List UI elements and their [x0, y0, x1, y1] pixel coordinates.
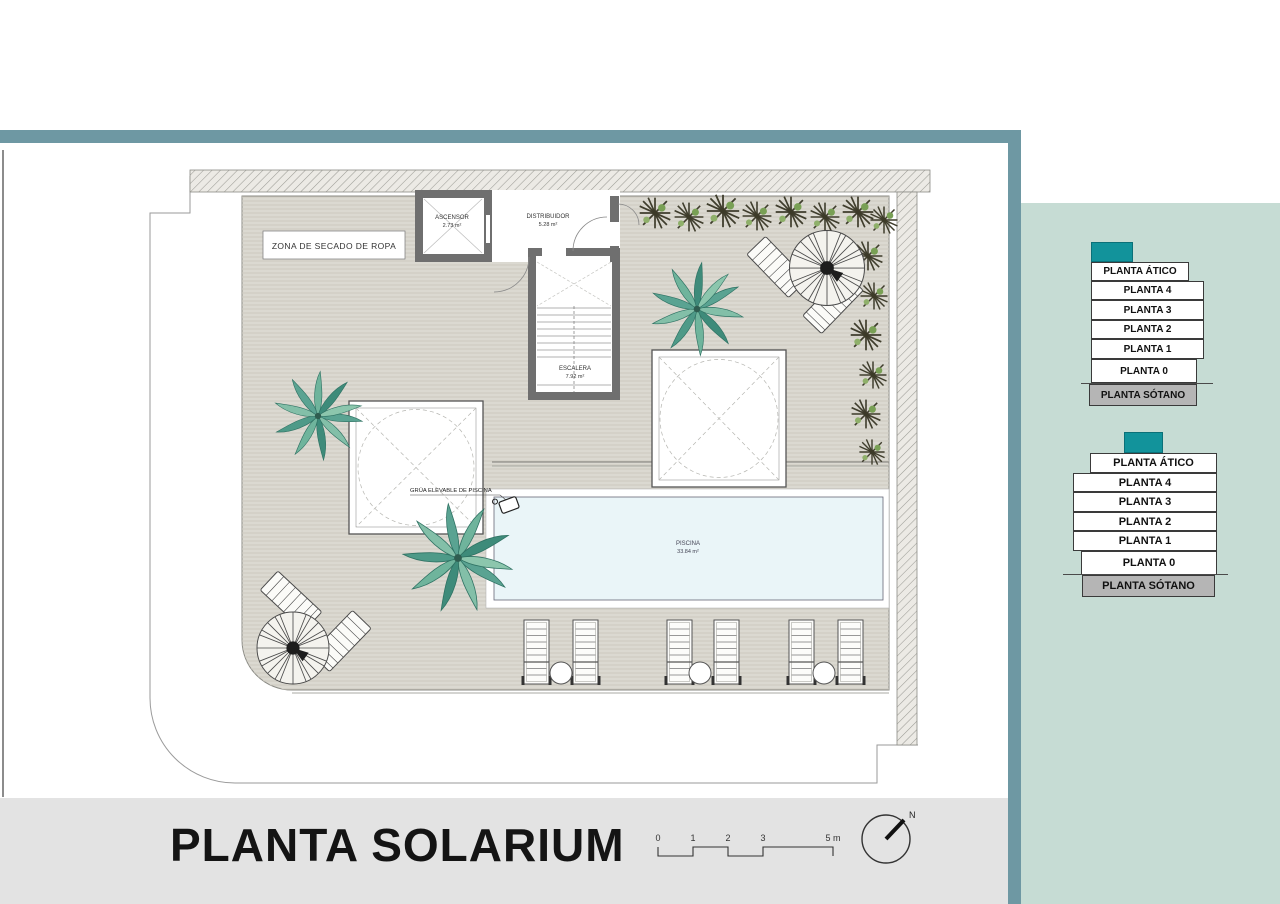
- floor-item-p0[interactable]: PLANTA 0: [1081, 551, 1217, 575]
- elevator-door-gap: [486, 215, 490, 243]
- stack-highlight-solarium: [1124, 432, 1163, 453]
- floor-item-p2[interactable]: PLANTA 2: [1091, 320, 1204, 339]
- floor-item-p0[interactable]: PLANTA 0: [1091, 359, 1197, 383]
- side-table-icon: [813, 662, 835, 684]
- side-table-icon: [689, 662, 711, 684]
- room-area-ascensor: 2.73 m²: [443, 223, 462, 229]
- floor-item-p3[interactable]: PLANTA 3: [1073, 492, 1217, 512]
- pool: PISCINA 33.84 m²: [486, 489, 889, 608]
- scale-tick-0: 0: [655, 833, 660, 843]
- scale-tick-5m: 5 m: [825, 833, 840, 843]
- floor-plan-drawing: ZONA DE SECADO DE ROPA PISCINA 33.84 m² …: [0, 143, 1008, 798]
- skylight-right: [652, 350, 786, 487]
- drying-zone-text: ZONA DE SECADO DE ROPA: [272, 241, 396, 251]
- scale-tick-1: 1: [690, 833, 695, 843]
- floor-item-p1[interactable]: PLANTA 1: [1091, 339, 1204, 359]
- floor-item-p3[interactable]: PLANTA 3: [1091, 300, 1204, 320]
- top-wall: [190, 170, 930, 192]
- building-stack-lower: PLANTA ÁTICO PLANTA 4 PLANTA 3 PLANTA 2 …: [1063, 432, 1228, 598]
- floor-item-sotano[interactable]: PLANTA SÓTANO: [1082, 575, 1215, 597]
- skylight-left: [349, 401, 483, 534]
- room-label-escalera: ESCALERA: [559, 366, 591, 372]
- floor-item-p2[interactable]: PLANTA 2: [1073, 512, 1217, 531]
- scale-and-north: 0 1 2 3 5 m N: [640, 800, 940, 890]
- room-area-escalera: 7.92 m²: [566, 374, 585, 380]
- north-label: N: [909, 810, 916, 820]
- north-arrow-icon: N: [862, 810, 916, 863]
- scale-bar: 0 1 2 3 5 m: [655, 833, 840, 856]
- room-label-distribuidor: DISTRIBUIDOR: [526, 214, 570, 220]
- right-wall: [897, 192, 917, 745]
- pool-name: PISCINA: [676, 541, 700, 547]
- floor-item-p4[interactable]: PLANTA 4: [1073, 473, 1217, 492]
- floor-item-atico[interactable]: PLANTA ÁTICO: [1091, 262, 1189, 281]
- room-label-ascensor: ASCENSOR: [435, 215, 469, 221]
- pool-area: 33.84 m²: [677, 549, 699, 555]
- floor-item-sotano[interactable]: PLANTA SÓTANO: [1089, 384, 1197, 406]
- room-area-distribuidor: 5.28 m²: [539, 222, 558, 228]
- building-stack-upper: PLANTA ÁTICO PLANTA 4 PLANTA 3 PLANTA 2 …: [1081, 242, 1213, 407]
- stack-highlight-solarium: [1091, 242, 1133, 262]
- floor-item-p1[interactable]: PLANTA 1: [1073, 531, 1217, 551]
- floor-item-p4[interactable]: PLANTA 4: [1091, 281, 1204, 300]
- scale-tick-3: 3: [760, 833, 765, 843]
- pool-crane-label: GRÚA ELEVABLE DE PISCINA: [410, 487, 492, 494]
- side-table-icon: [550, 662, 572, 684]
- accent-bar-horizontal: [0, 130, 1010, 143]
- accent-bar-vertical: [1008, 130, 1021, 904]
- floor-item-atico[interactable]: PLANTA ÁTICO: [1090, 453, 1217, 473]
- drying-zone-label: ZONA DE SECADO DE ROPA: [263, 231, 405, 259]
- scale-tick-2: 2: [725, 833, 730, 843]
